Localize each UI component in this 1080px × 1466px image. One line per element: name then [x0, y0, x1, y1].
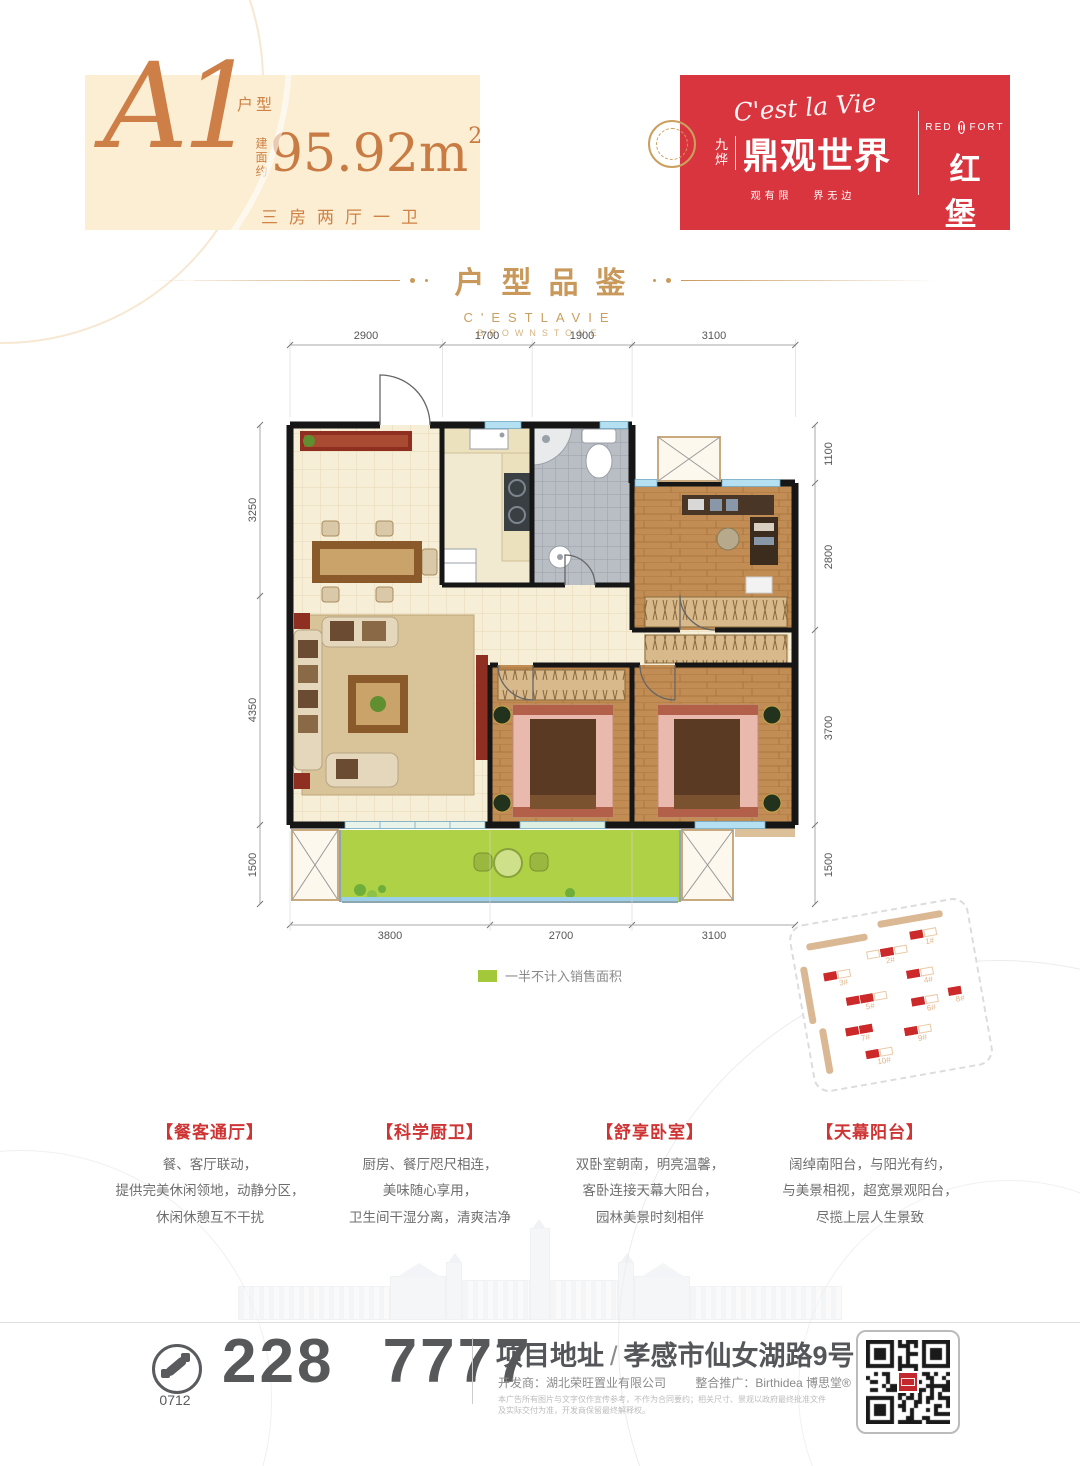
- svg-text:1700: 1700: [475, 330, 499, 342]
- brand-prefix: 九烨: [715, 138, 728, 168]
- site-keyplan: 1# 2# 3# 4# 5# 6# 7# 8# 9# 10#: [787, 895, 996, 1094]
- svg-text:3100: 3100: [702, 330, 726, 342]
- svg-text:4350: 4350: [247, 698, 259, 722]
- svg-text:1900: 1900: [570, 330, 594, 342]
- brand-divider: [918, 111, 919, 195]
- feature-bedroom: 【舒享卧室】 双卧室朝南，明亮温馨， 客卧连接天幕大阳台， 园林美景时刻相伴: [540, 1118, 760, 1231]
- address-value: 孝感市仙女湖路9号: [624, 1341, 855, 1371]
- svg-text:1500: 1500: [247, 853, 259, 877]
- building-label: 6#: [926, 1002, 936, 1012]
- qr-code: [856, 1330, 960, 1434]
- svg-text:3100: 3100: [702, 930, 726, 942]
- svg-text:3800: 3800: [378, 930, 402, 942]
- heading-line: [145, 280, 400, 281]
- building-label: 1#: [924, 936, 934, 946]
- site-bar: [877, 910, 943, 928]
- building-label: 5#: [865, 1001, 875, 1011]
- heading-dot: [425, 279, 428, 282]
- building-label: 2#: [885, 955, 895, 965]
- brand-card: C'est la Vie 九烨 鼎观世界 观有限 界无边 RED FORT 红堡: [680, 75, 1010, 230]
- section-title: 户型品鉴: [438, 258, 643, 302]
- gold-seal-icon: [648, 120, 696, 168]
- legend-label: 一半不计入销售面积: [505, 966, 622, 985]
- plan-legend: 一半不计入销售面积: [478, 966, 622, 985]
- floor-plan: 2900 1700 1900 3100 3800 2700 3100 3250 …: [230, 325, 880, 975]
- contact-divider: [472, 1338, 473, 1404]
- flyer-page: A1 户型 建面约 95.92m2 三房两厅一卫 C'est la Vie 九烨…: [0, 0, 1080, 1466]
- svg-text:2700: 2700: [549, 930, 573, 942]
- building-label: 7#: [860, 1032, 870, 1042]
- heading-dot: [666, 278, 671, 283]
- site-bar: [800, 966, 817, 1024]
- brand-main: 九烨 鼎观世界: [696, 127, 910, 179]
- feature-balcony: 【天幕阳台】 阔绰南阳台，与阳光有约， 与美景相视，超宽景观阳台， 尽揽上层人生…: [760, 1118, 980, 1231]
- brand-tagline: 观有限 界无边: [696, 187, 910, 202]
- skyline-silhouette: [0, 1226, 1080, 1320]
- feature-title: 【天幕阳台】: [760, 1118, 980, 1143]
- footer-divider: [0, 1322, 1080, 1323]
- svg-text:1100: 1100: [823, 442, 835, 466]
- red-fort-block: RED FORT 红堡: [926, 121, 1004, 234]
- area-code: 0712: [150, 1392, 200, 1408]
- building-label: 3#: [838, 977, 848, 987]
- feature-title: 【科学厨卫】: [320, 1118, 540, 1143]
- unit-layout: 三房两厅一卫: [261, 203, 429, 228]
- tagline-left: 观有限: [751, 191, 793, 202]
- developer-row: 开发商：湖北荣旺置业有限公司 整合推广：Birthidea 博思堂®: [498, 1374, 877, 1391]
- svg-text:3250: 3250: [247, 498, 259, 522]
- area-superscript: 2: [468, 124, 482, 149]
- features-row: 【餐客通厅】 餐、客厅联动， 提供完美休闲领地，动静分区， 休闲休憩互不干扰 【…: [0, 1118, 1080, 1231]
- site-bar: [819, 1028, 834, 1075]
- site-bar: [806, 933, 868, 951]
- section-en1: C'ESTLAVIE: [0, 310, 1080, 325]
- contact-bar: 0712 228 7777 项目地址/孝感市仙女湖路9号 开发商：湖北荣旺置业有…: [0, 1330, 1080, 1450]
- tagline-right: 界无边: [813, 191, 855, 202]
- red-fort-cn: 红堡: [926, 144, 1004, 234]
- red-fort-en: RED FORT: [926, 121, 1004, 134]
- brand-name: 鼎观世界: [743, 127, 891, 179]
- unit-type-label: 户型: [237, 91, 275, 115]
- feature-dining: 【餐客通厅】 餐、客厅联动， 提供完美休闲领地，动静分区， 休闲休憩互不干扰: [100, 1118, 320, 1231]
- project-address: 项目地址/孝感市仙女湖路9号: [496, 1334, 855, 1373]
- area-value: 95.92m2: [270, 123, 482, 185]
- unit-code: A1: [103, 47, 251, 165]
- heading-dot: [410, 278, 415, 283]
- brand-script: C'est la Vie: [701, 86, 909, 129]
- feature-kitchen-bath: 【科学厨卫】 厨房、餐厅咫尺相连， 美味随心享用， 卫生间干湿分离，清爽洁净: [320, 1118, 540, 1231]
- unit-card: A1 户型 建面约 95.92m2 三房两厅一卫: [85, 75, 480, 230]
- svg-text:2800: 2800: [823, 545, 835, 569]
- svg-text:3700: 3700: [823, 716, 835, 740]
- fort-emblem-icon: [958, 121, 965, 134]
- building-label: 8#: [955, 993, 965, 1003]
- legend-swatch: [478, 970, 497, 982]
- building-label: 9#: [917, 1033, 927, 1043]
- area-prefix: 建面约: [253, 137, 270, 179]
- feature-title: 【餐客通厅】: [100, 1118, 320, 1143]
- qr-center-logo: [897, 1371, 919, 1393]
- floor-plan-svg: 2900 1700 1900 3100 3800 2700 3100 3250 …: [230, 325, 880, 975]
- feature-title: 【舒享卧室】: [540, 1118, 760, 1143]
- building-label: 10#: [877, 1055, 892, 1066]
- heading-line: [681, 280, 936, 281]
- unit-area: 建面约 95.92m2: [253, 123, 482, 185]
- svg-text:1500: 1500: [823, 853, 835, 877]
- phone-number: 228 7777: [222, 1326, 533, 1397]
- address-label: 项目地址: [496, 1341, 604, 1371]
- living-furniture: [294, 613, 488, 795]
- brand-separator: [735, 136, 736, 170]
- heading-dot: [653, 279, 656, 282]
- building-label: 4#: [923, 975, 933, 985]
- svg-text:2900: 2900: [354, 330, 378, 342]
- disclaimer: 本广告所有图片与文字仅作宣传参考，不作为合同要约；相关尺寸、景观以政府最终批准文…: [498, 1394, 828, 1416]
- phone-icon: [152, 1344, 202, 1394]
- developer: 开发商：湖北荣旺置业有限公司: [498, 1376, 666, 1390]
- agency: 整合推广：Birthidea 博思堂®: [695, 1376, 851, 1390]
